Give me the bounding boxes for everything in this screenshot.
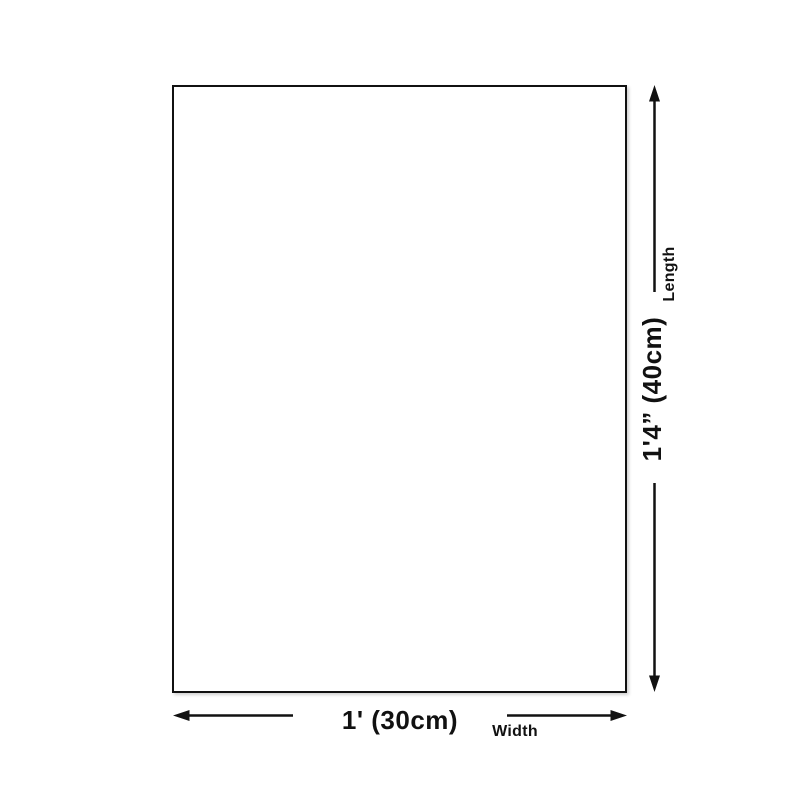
width-arrow-left-icon bbox=[173, 710, 293, 721]
width-arrow-right-icon bbox=[507, 710, 627, 721]
length-arrow-down-icon bbox=[649, 483, 660, 692]
width-label: Width bbox=[492, 724, 538, 740]
length-arrow-up-icon bbox=[649, 85, 660, 292]
dimension-diagram: 1' (30cm) Width 1'4” (40cm) Length bbox=[0, 0, 800, 800]
width-value: 1' (30cm) bbox=[342, 707, 458, 733]
product-outline bbox=[172, 85, 627, 693]
length-value: 1'4” (40cm) bbox=[639, 317, 665, 462]
length-label: Length bbox=[662, 246, 678, 301]
